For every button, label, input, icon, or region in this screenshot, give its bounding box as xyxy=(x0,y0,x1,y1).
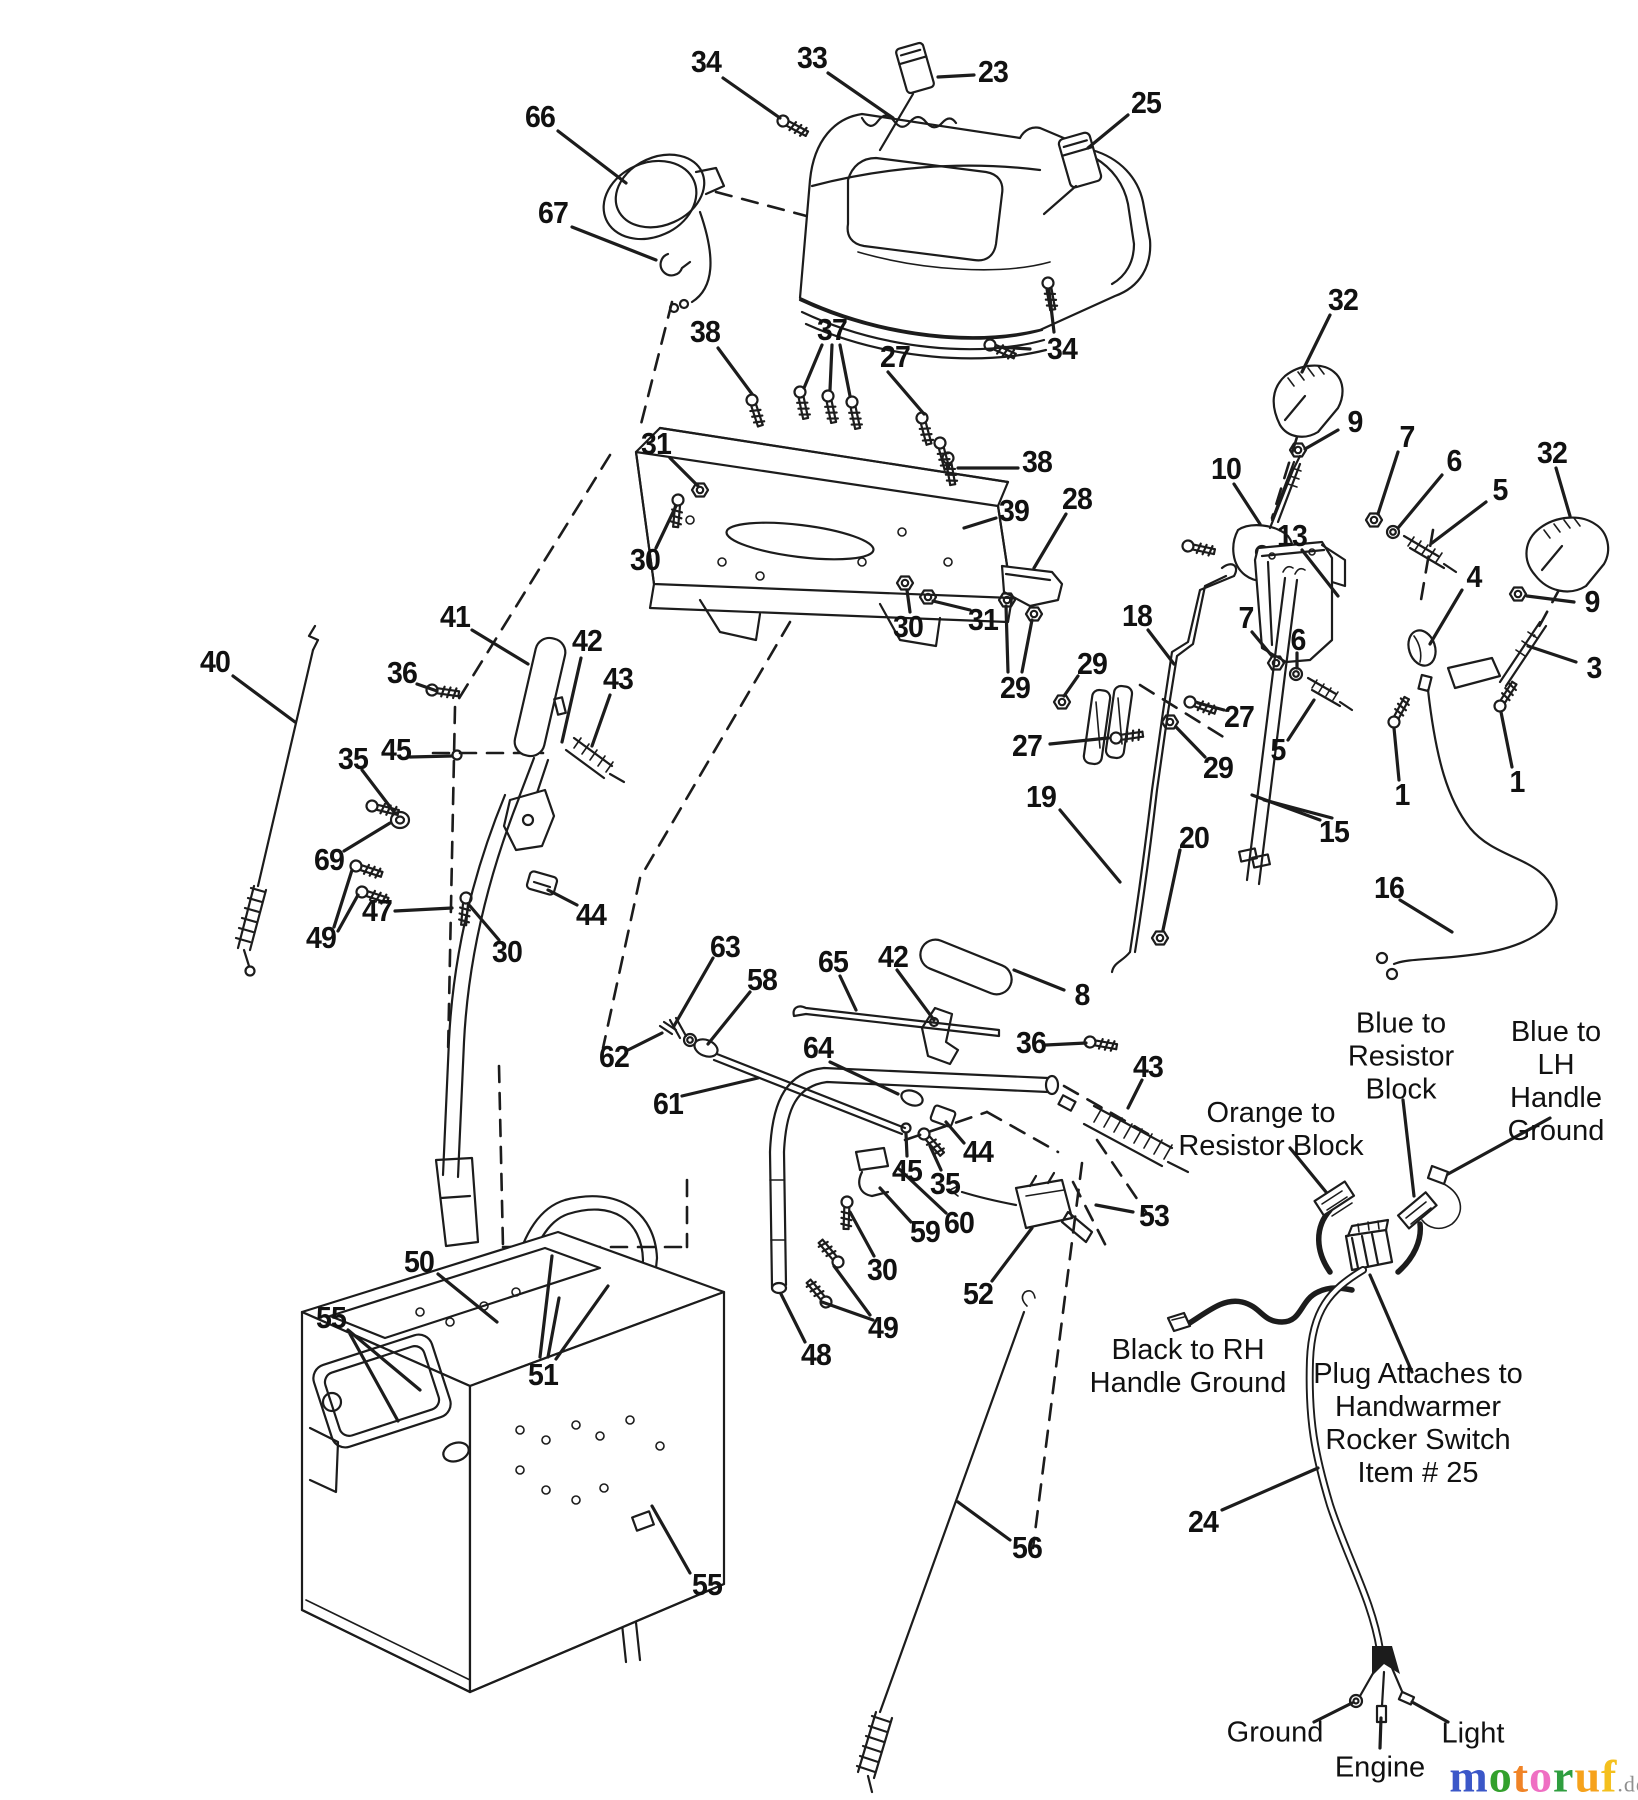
part-label-32-30: 32 xyxy=(1328,282,1358,318)
rod-3-art xyxy=(1448,622,1546,688)
annotation-light: Light xyxy=(1442,1717,1505,1750)
part-label-1-42: 1 xyxy=(1510,764,1525,800)
part-label-42-45: 42 xyxy=(572,623,602,659)
hood-art xyxy=(800,114,1150,358)
part-label-27-18: 27 xyxy=(1012,728,1042,764)
watermark-letter: m xyxy=(1449,1751,1488,1800)
part-label-30-15: 30 xyxy=(893,609,923,645)
part-label-29-23: 29 xyxy=(1203,750,1233,786)
part-label-34-0: 34 xyxy=(691,44,721,80)
annotation-plug-attaches: Plug Attaches to Handwarmer Rocker Switc… xyxy=(1313,1358,1523,1490)
annotation-black-rh-handle-ground: Black to RH Handle Ground xyxy=(1090,1334,1287,1400)
part-label-35-67: 35 xyxy=(930,1166,960,1202)
part-label-9-39: 9 xyxy=(1585,584,1600,620)
part-label-51-77: 51 xyxy=(528,1357,558,1393)
part-label-15-28: 15 xyxy=(1319,814,1349,850)
part-label-31-16: 31 xyxy=(968,602,998,638)
part-label-32-36: 32 xyxy=(1537,435,1567,471)
watermark-letter: t xyxy=(1513,1751,1529,1800)
part-label-45-66: 45 xyxy=(892,1153,922,1189)
part-label-45-48: 45 xyxy=(381,732,411,768)
part-label-31-10: 31 xyxy=(641,426,671,462)
knob-32-right xyxy=(1526,518,1608,592)
part-label-6-34: 6 xyxy=(1447,443,1462,479)
part-label-7-33: 7 xyxy=(1400,419,1415,455)
rocker-switch-23 xyxy=(895,42,935,94)
watermark-letter: f xyxy=(1601,1751,1617,1800)
annotation-blue-resistor-block: Blue to Resistor Block xyxy=(1348,1007,1454,1106)
clamp-44-right xyxy=(930,1105,956,1128)
part-label-1-41: 1 xyxy=(1395,777,1410,813)
part-label-34-9: 34 xyxy=(1047,331,1077,367)
part-label-36-62: 36 xyxy=(1016,1025,1046,1061)
part-label-7-25: 7 xyxy=(1239,600,1254,636)
part-label-43-47: 43 xyxy=(603,661,633,697)
part-label-69-50: 69 xyxy=(314,842,344,878)
spring-43-left xyxy=(566,738,624,782)
annotation-engine: Engine xyxy=(1335,1751,1425,1784)
part-label-55-78: 55 xyxy=(692,1567,722,1603)
part-label-25-3: 25 xyxy=(1131,85,1161,121)
spring-5-bottom xyxy=(1308,678,1352,710)
part-label-62-57: 62 xyxy=(599,1039,629,1075)
part-label-29-19: 29 xyxy=(1077,646,1107,682)
cable-56-art xyxy=(857,1291,1035,1792)
part-label-39-12: 39 xyxy=(999,493,1029,529)
annotation-ground: Ground xyxy=(1227,1716,1324,1749)
part-label-47-51: 47 xyxy=(362,893,392,929)
part-label-49-52: 49 xyxy=(306,920,336,956)
part-label-44-65: 44 xyxy=(963,1134,993,1170)
part-label-48-74: 48 xyxy=(801,1337,831,1373)
part-label-27-8: 27 xyxy=(880,339,910,375)
part-label-5-27: 5 xyxy=(1271,732,1286,768)
part-label-38-6: 38 xyxy=(690,314,720,350)
part-label-28-13: 28 xyxy=(1062,481,1092,517)
pin-42-left xyxy=(554,697,566,714)
part-label-30-54: 30 xyxy=(492,934,522,970)
part-label-55-76: 55 xyxy=(316,1300,346,1336)
part-label-60-69: 60 xyxy=(944,1205,974,1241)
watermark-letter: r xyxy=(1553,1751,1574,1800)
annotation-orange-resistor-block: Orange to Resistor Block xyxy=(1178,1097,1363,1163)
part-label-53-72: 53 xyxy=(1139,1198,1169,1234)
part-label-43-63: 43 xyxy=(1133,1049,1163,1085)
part-label-42-60: 42 xyxy=(878,939,908,975)
cable-16-art xyxy=(1377,675,1557,979)
part-label-49-73: 49 xyxy=(868,1310,898,1346)
part-label-35-49: 35 xyxy=(338,741,368,777)
part-label-16-29: 16 xyxy=(1374,870,1404,906)
watermark-letter: o xyxy=(1529,1751,1553,1800)
part-label-66-4: 66 xyxy=(525,99,555,135)
grip-spring-43-right xyxy=(1058,1095,1188,1172)
part-label-13-37: 13 xyxy=(1277,518,1307,554)
part-label-40-43: 40 xyxy=(200,644,230,680)
part-label-61-58: 61 xyxy=(653,1086,683,1122)
part-label-18-20: 18 xyxy=(1122,598,1152,634)
part-label-5-35: 5 xyxy=(1493,472,1508,508)
engine-frame-art xyxy=(302,1232,724,1692)
speed-lever-41-art xyxy=(504,635,568,850)
annotation-blue-lh-handle-ground: Blue to LH Handle Ground xyxy=(1508,1016,1605,1148)
part-label-52-71: 52 xyxy=(963,1276,993,1312)
part-label-33-1: 33 xyxy=(797,40,827,76)
pin-45-left xyxy=(453,751,462,760)
watermark-letter: o xyxy=(1489,1751,1513,1800)
part-label-56-79: 56 xyxy=(1012,1530,1042,1566)
part-label-37-7: 37 xyxy=(817,312,847,348)
part-label-63-55: 63 xyxy=(710,929,740,965)
part-label-8-61: 8 xyxy=(1075,977,1090,1013)
part-label-19-21: 19 xyxy=(1026,779,1056,815)
watermark-letter: u xyxy=(1574,1751,1601,1800)
part-label-64-64: 64 xyxy=(803,1030,833,1066)
part-label-27-24: 27 xyxy=(1224,699,1254,735)
parts-diagram-canvas: 3433232566673837273431383928303031292729… xyxy=(0,0,1638,1800)
part-label-23-2: 23 xyxy=(978,54,1008,90)
pivot-plates-art xyxy=(1083,685,1133,765)
watermark: motoruf.de xyxy=(1449,1750,1638,1800)
part-label-50-75: 50 xyxy=(404,1244,434,1280)
part-label-38-11: 38 xyxy=(1022,444,1052,480)
part-label-65-59: 65 xyxy=(818,944,848,980)
chute-knob-32-left xyxy=(1274,366,1343,437)
part-label-6-26: 6 xyxy=(1291,622,1306,658)
part-label-29-17: 29 xyxy=(1000,670,1030,706)
part-label-3-40: 3 xyxy=(1587,650,1602,686)
linkage-61-cluster xyxy=(660,1006,999,1134)
watermark-suffix: .de xyxy=(1617,1772,1638,1797)
headlight-art xyxy=(591,141,724,312)
part-label-24-80: 24 xyxy=(1188,1504,1218,1540)
panel-art xyxy=(636,428,1012,646)
part-label-10-32: 10 xyxy=(1211,451,1241,487)
part-label-4-38: 4 xyxy=(1467,559,1482,595)
part-label-67-5: 67 xyxy=(538,195,568,231)
grip-8-art xyxy=(916,935,1016,1064)
part-label-41-44: 41 xyxy=(440,599,470,635)
bracket-59-60-art xyxy=(856,1148,888,1196)
part-label-9-31: 9 xyxy=(1348,404,1363,440)
part-label-36-46: 36 xyxy=(387,655,417,691)
part-label-30-14: 30 xyxy=(630,542,660,578)
part-label-59-68: 59 xyxy=(910,1214,940,1250)
part-label-30-70: 30 xyxy=(867,1252,897,1288)
part-label-44-53: 44 xyxy=(576,897,606,933)
part-label-58-56: 58 xyxy=(747,962,777,998)
grommet-69-art xyxy=(391,812,409,828)
part-label-20-22: 20 xyxy=(1179,820,1209,856)
